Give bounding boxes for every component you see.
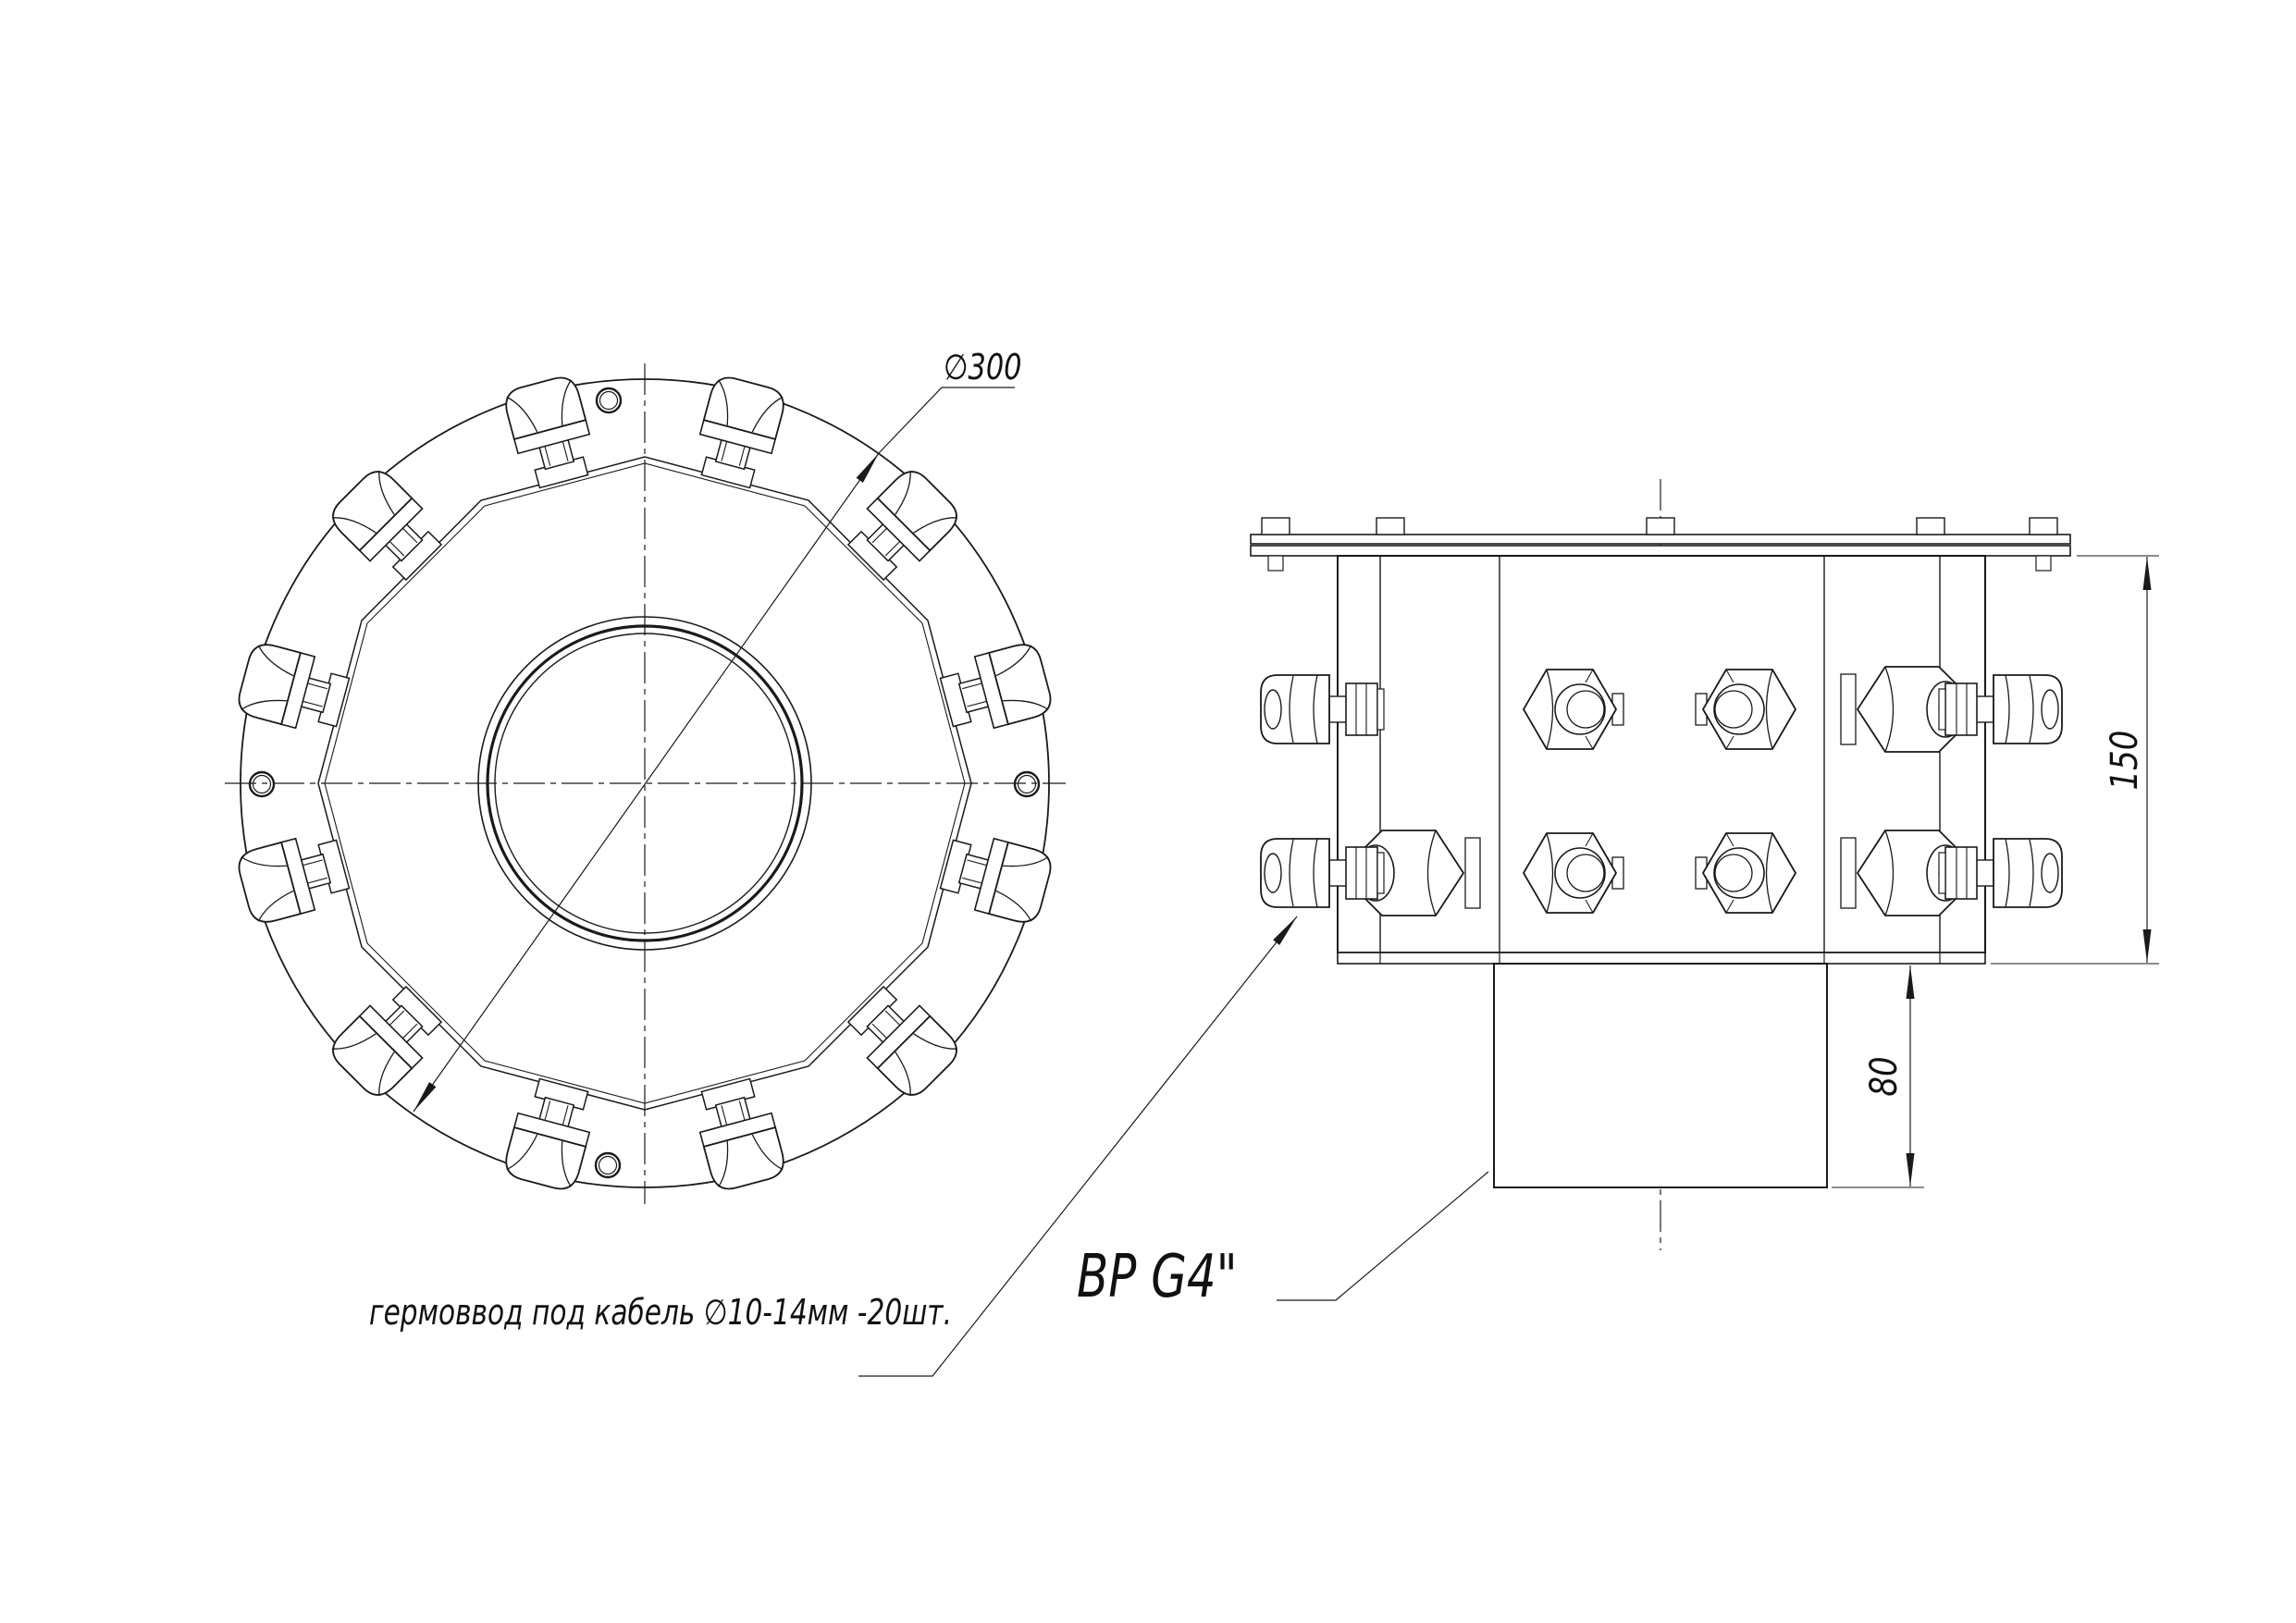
thread-note-group: ВР G4"	[1077, 1172, 1488, 1311]
spigot-label: 80	[1862, 1056, 1905, 1096]
drawing-sheet: ∅300	[0, 0, 2296, 1623]
flange-plate-top	[1251, 535, 2070, 544]
flange-plate-bottom	[1251, 546, 2070, 556]
height-label: 150	[2103, 731, 2145, 791]
top-view: ∅300	[225, 348, 1066, 1204]
spigot-dimension: 80	[1832, 965, 1924, 1187]
technical-drawing: ∅300	[0, 0, 2296, 1623]
gland-note-label: гермоввод под кабель ∅10-14мм -20шт.	[369, 1292, 952, 1334]
thread-leader	[1277, 1172, 1488, 1300]
thread-label: ВР G4"	[1077, 1242, 1238, 1311]
pipe-spigot	[1494, 964, 1827, 1187]
diameter-label: ∅300	[944, 348, 1022, 388]
gland-ring	[235, 374, 1055, 1193]
side-view: 150 80	[1251, 479, 2159, 1250]
body-bottom-band	[1338, 953, 1985, 964]
